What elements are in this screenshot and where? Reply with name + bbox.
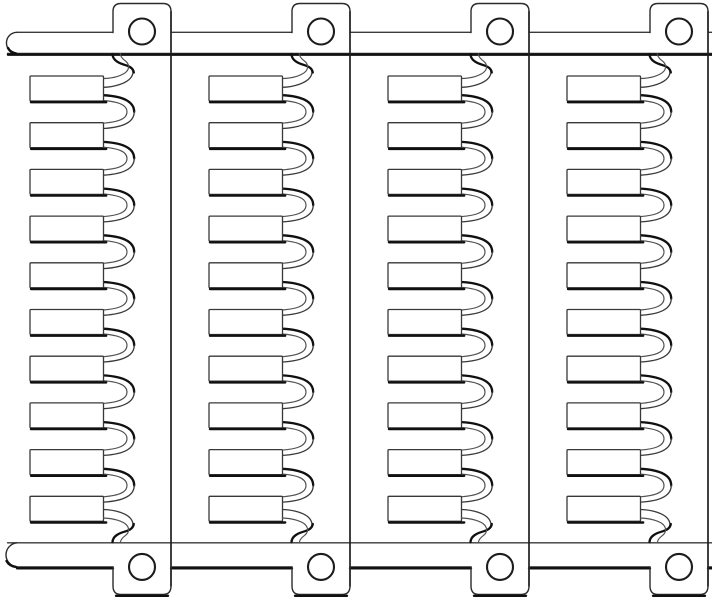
serpentine-link-inner xyxy=(462,287,486,310)
marker-tab xyxy=(30,123,104,148)
marker-tab xyxy=(209,450,283,475)
marker-tab xyxy=(209,76,283,101)
serpentine-link-inner xyxy=(641,101,665,124)
serpentine-link-inner xyxy=(462,241,486,264)
marker-tab xyxy=(30,310,104,335)
serpentine-top-link-shadow xyxy=(471,54,492,73)
serpentine-link-inner xyxy=(462,334,486,357)
marker-tab xyxy=(30,496,104,521)
marker-tab xyxy=(30,216,104,241)
figure xyxy=(0,0,712,600)
marker-tab xyxy=(30,450,104,475)
marker-tab xyxy=(567,496,641,521)
serpentine-link-inner xyxy=(104,427,128,450)
marker-tab xyxy=(209,403,283,428)
serpentine-link-inner xyxy=(283,381,307,404)
mounting-hole-bottom xyxy=(487,554,513,580)
carrier-rail-unit-3 xyxy=(388,4,529,596)
serpentine-link-inner xyxy=(462,381,486,404)
marker-tab xyxy=(30,169,104,194)
marker-tab xyxy=(567,263,641,288)
serpentine-link-inner xyxy=(104,474,128,497)
serpentine-bottom-link-outer xyxy=(462,510,491,543)
serpentine-top-link-shadow xyxy=(292,54,313,73)
serpentine-link-inner xyxy=(104,287,128,310)
serpentine-bottom-link-inner xyxy=(641,518,666,542)
serpentine-bottom-link-outer xyxy=(104,510,133,543)
mounting-hole-top xyxy=(666,19,692,45)
carrier-bars xyxy=(6,32,712,568)
serpentine-link-inner xyxy=(283,147,307,170)
serpentine-bottom-link-inner xyxy=(104,518,129,542)
marker-tab xyxy=(209,356,283,381)
serpentine-link-inner xyxy=(641,474,665,497)
serpentine-link-inner xyxy=(641,287,665,310)
serpentine-top-link-outer xyxy=(283,54,312,88)
serpentine-link-inner xyxy=(283,474,307,497)
serpentine-link-inner xyxy=(104,334,128,357)
serpentine-link-inner xyxy=(283,101,307,124)
carrier-rail-unit-2 xyxy=(209,4,350,596)
marker-tab xyxy=(567,123,641,148)
marker-tab xyxy=(567,356,641,381)
mounting-hole-top xyxy=(308,19,334,45)
marker-tab xyxy=(30,403,104,428)
marker-tab xyxy=(388,450,462,475)
marker-tab xyxy=(388,496,462,521)
serpentine-link-inner xyxy=(104,381,128,404)
serpentine-link-inner xyxy=(641,427,665,450)
serpentine-bottom-link-shadow xyxy=(113,524,134,542)
marker-tab xyxy=(388,403,462,428)
marker-tab xyxy=(209,263,283,288)
carrier-rail-unit-1 xyxy=(30,4,171,596)
marker-tab xyxy=(388,263,462,288)
serpentine-top-link-shadow xyxy=(113,54,134,73)
serpentine-link-inner xyxy=(104,101,128,124)
serpentine-bottom-link-shadow xyxy=(650,524,671,542)
serpentine-top-link-outer xyxy=(104,54,133,88)
serpentine-bottom-link-outer xyxy=(641,510,670,543)
mounting-hole-bottom xyxy=(129,554,155,580)
bottom-carrier-bar-cap-shadow xyxy=(7,561,17,567)
marker-tab xyxy=(30,263,104,288)
serpentine-link-inner xyxy=(283,287,307,310)
marker-tab xyxy=(567,310,641,335)
serpentine-link-inner xyxy=(283,334,307,357)
serpentine-link-inner xyxy=(641,147,665,170)
marker-tab xyxy=(30,76,104,101)
serpentine-link-inner xyxy=(462,474,486,497)
mounting-hole-bottom xyxy=(308,554,334,580)
marker-tab xyxy=(567,450,641,475)
marker-tab xyxy=(388,76,462,101)
marker-tab xyxy=(388,216,462,241)
serpentine-link-inner xyxy=(641,381,665,404)
serpentine-link-inner xyxy=(283,241,307,264)
mounting-hole-top xyxy=(129,19,155,45)
serpentine-bottom-link-inner xyxy=(462,518,487,542)
marker-tab xyxy=(567,169,641,194)
serpentine-bottom-link-outer xyxy=(283,510,312,543)
marker-frame-drawing xyxy=(0,0,712,600)
marker-tab xyxy=(567,403,641,428)
marker-tab xyxy=(388,356,462,381)
serpentine-link-inner xyxy=(283,194,307,217)
marker-tab xyxy=(388,123,462,148)
serpentine-link-inner xyxy=(104,194,128,217)
top-carrier-bar-cap-shadow xyxy=(8,48,16,53)
serpentine-link-inner xyxy=(462,147,486,170)
serpentine-top-link-outer xyxy=(462,54,491,88)
marker-tab xyxy=(209,310,283,335)
serpentine-link-inner xyxy=(641,334,665,357)
marker-tab xyxy=(209,216,283,241)
marker-tab xyxy=(567,76,641,101)
serpentine-link-inner xyxy=(104,241,128,264)
serpentine-top-link-outer xyxy=(641,54,670,88)
serpentine-link-inner xyxy=(641,194,665,217)
marker-tab xyxy=(388,310,462,335)
serpentine-bottom-link-shadow xyxy=(292,524,313,542)
carrier-rail-unit-4 xyxy=(567,4,708,596)
serpentine-bottom-link-shadow xyxy=(471,524,492,542)
serpentine-link-inner xyxy=(462,101,486,124)
serpentine-top-link-shadow xyxy=(650,54,671,73)
marker-tab xyxy=(388,169,462,194)
marker-tab xyxy=(567,216,641,241)
marker-tab xyxy=(30,356,104,381)
serpentine-link-inner xyxy=(104,147,128,170)
marker-tab xyxy=(209,496,283,521)
serpentine-link-inner xyxy=(641,241,665,264)
serpentine-link-inner xyxy=(283,427,307,450)
marker-tab xyxy=(209,123,283,148)
mounting-hole-top xyxy=(487,19,513,45)
mounting-hole-bottom xyxy=(666,554,692,580)
serpentine-bottom-link-inner xyxy=(283,518,308,542)
marker-tab xyxy=(209,169,283,194)
serpentine-link-inner xyxy=(462,427,486,450)
serpentine-link-inner xyxy=(462,194,486,217)
